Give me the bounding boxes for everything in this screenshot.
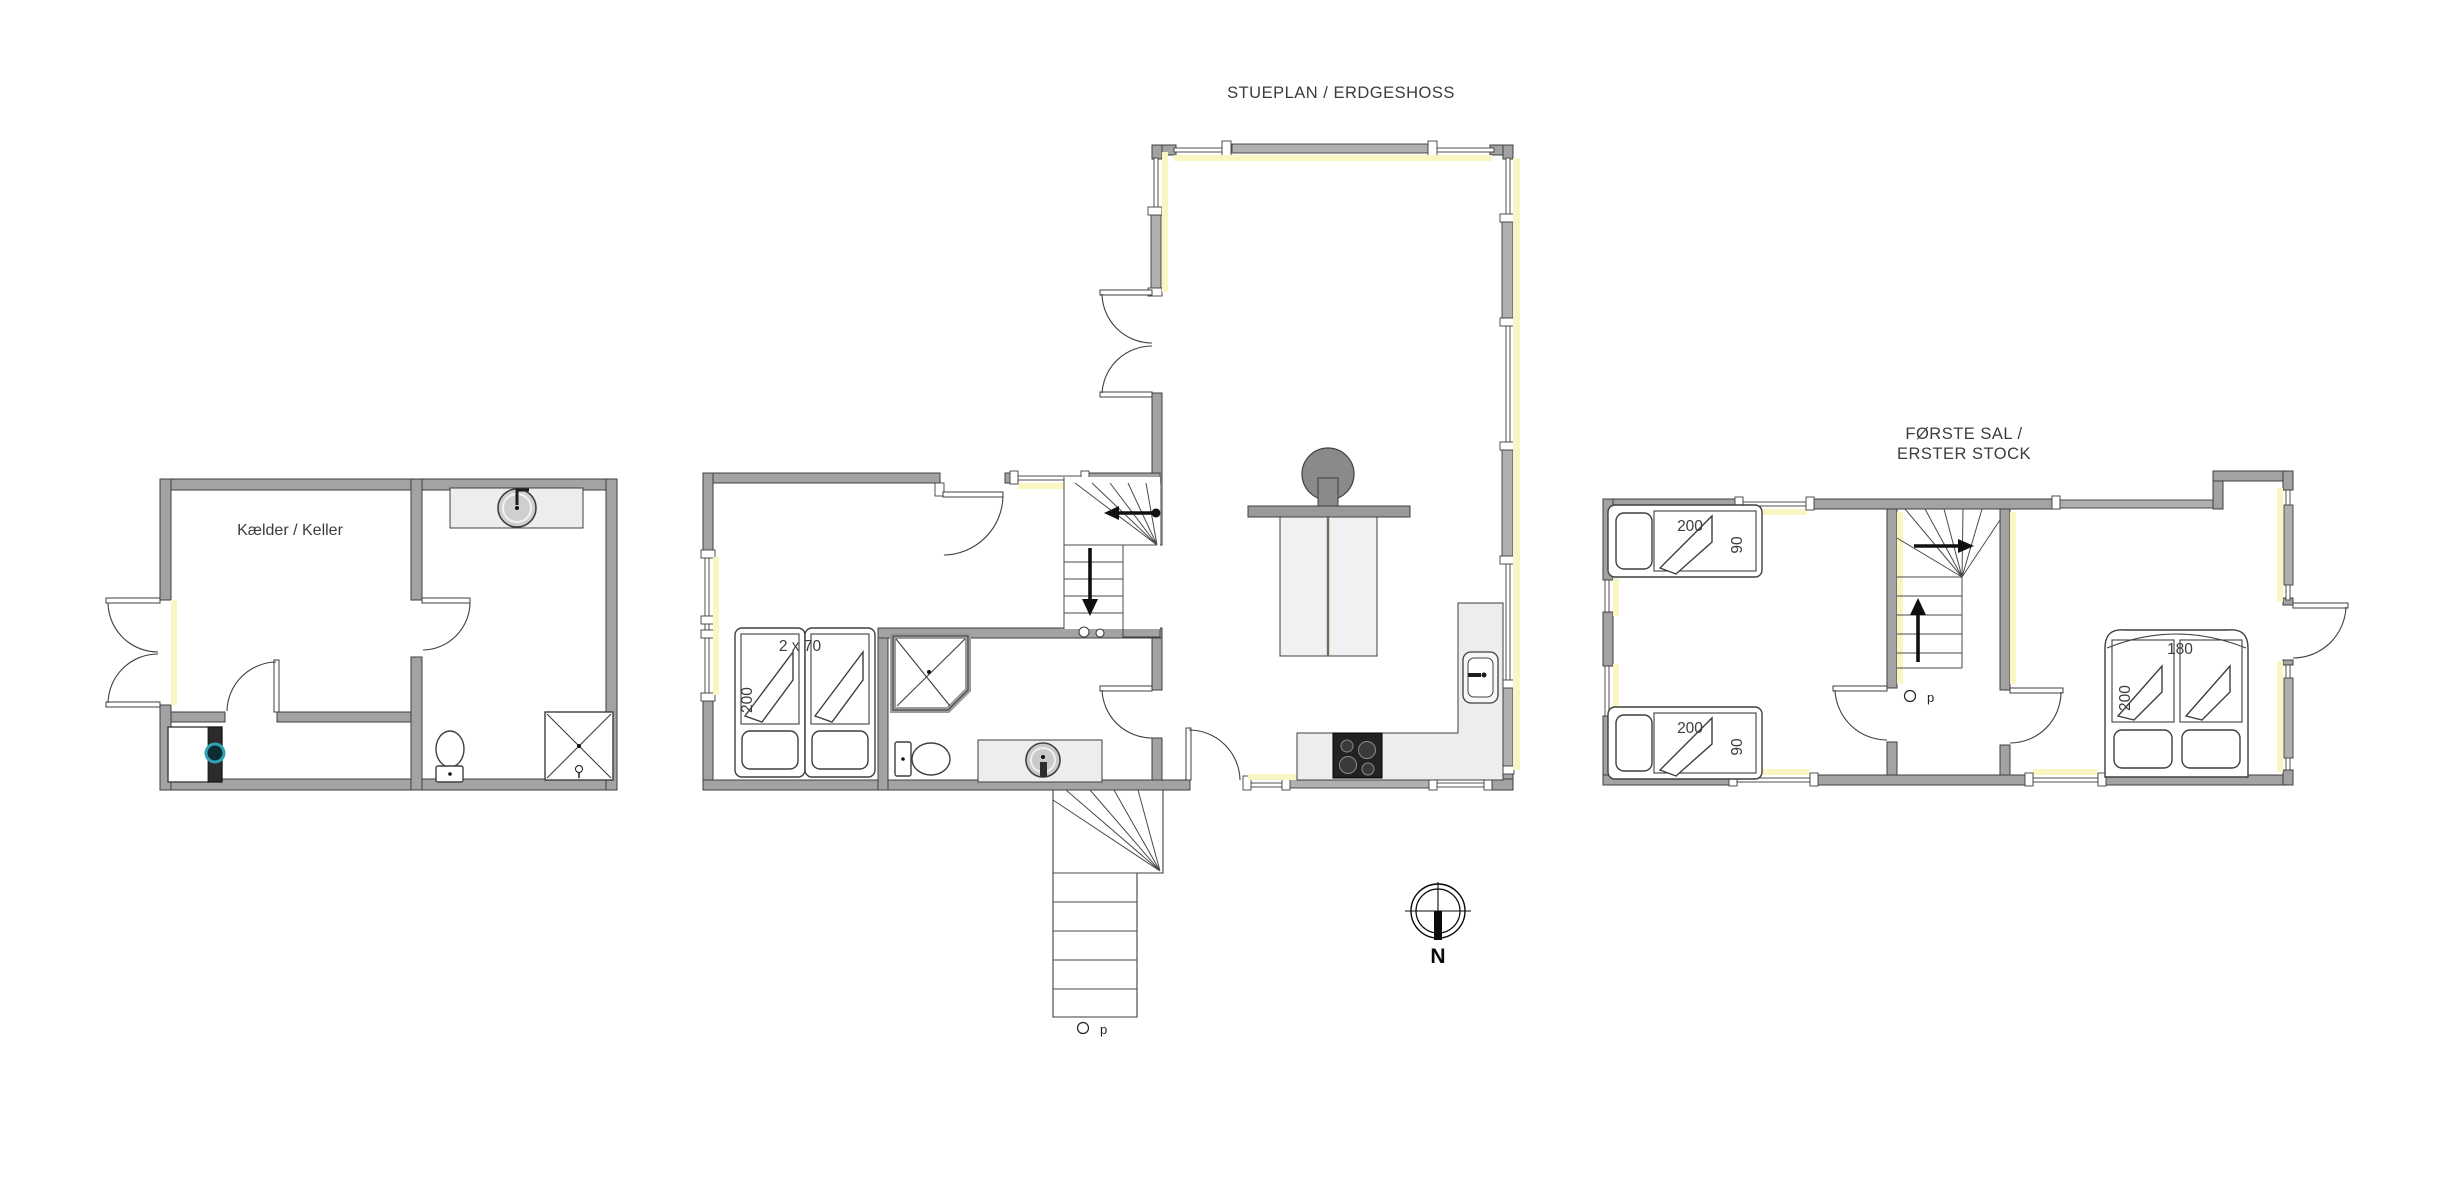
basement-window-glow [171,600,177,705]
first-floor-double-bed: 180 200 [2105,630,2248,777]
stair-arrow-up-icon [1910,598,1926,662]
bed-width-label: 90 [1729,738,1746,756]
hall-entry-door [935,483,1003,555]
floorplan-canvas: STUEPLAN / ERDGESHOSS FØRSTE SAL / ERSTE… [0,0,2460,1197]
living-room-french-doors [1100,290,1152,397]
exterior-stairs: p [1053,790,1163,1037]
bed-length-label: 200 [739,687,756,713]
first-floor-bed-bottom: 200 90 [1608,707,1762,779]
basement-shower-icon [545,712,613,780]
washing-machine-icon [168,727,224,782]
ground-bedroom-beds: 2 x 70 200 [735,628,875,777]
first-floor-right-room-door [2010,688,2063,743]
bed-width-label: 2 x 70 [779,638,822,655]
basement-bathroom-door [422,598,470,650]
compass-north-label: N [1430,945,1445,968]
basement-sink-icon [450,488,583,528]
ground-sink-icon [978,740,1102,782]
stairs-to-basement [1064,477,1161,637]
bed-width-label: 180 [2167,641,2193,658]
first-floor-plan: p 200 90 200 90 [1603,471,2348,786]
first-floor-title-line1: FØRSTE SAL / [1905,425,2022,443]
stair-arrow-right-icon [1914,539,1974,553]
main-entrance-door [1186,728,1240,780]
ground-floor-plan: 2 x 70 200 [701,141,1520,1037]
compass-icon: N [1405,882,1471,968]
ground-toilet-icon [895,742,950,776]
first-floor-title-line2: ERSTER STOCK [1897,445,2031,463]
stair-symbol-p: p [1100,1022,1107,1037]
floorplan-page: STUEPLAN / ERDGESHOSS FØRSTE SAL / ERSTE… [0,0,2460,1197]
cooktop-icon [1333,733,1382,778]
stair-symbol-circle-icon [1905,691,1916,702]
bed-length-label: 200 [2117,685,2134,711]
stairs-to-ground: p [1897,509,2000,705]
first-floor-balcony-door [2293,603,2348,658]
stair-symbol-circle-icon [1078,1023,1089,1034]
basement-plan: Kælder / Keller [106,479,617,790]
first-floor-left-room-door [1833,686,1887,740]
bed-width-label: 90 [1729,536,1746,554]
bed-length-label: 200 [1677,720,1703,737]
stair-symbol-p: p [1927,690,1934,705]
bed-length-label: 200 [1677,518,1703,535]
basement-toilet-icon [436,731,464,782]
basement-room-label: Kælder / Keller [237,522,343,539]
basement-room-door [227,660,279,712]
basement-exterior-double-door [106,598,160,707]
wood-stove-and-table [1248,448,1410,656]
kitchen-sink-icon [1463,652,1498,703]
ground-bathroom-door [1100,686,1152,738]
ground-floor-title: STUEPLAN / ERDGESHOSS [1227,84,1455,102]
first-floor-bed-top: 200 90 [1608,505,1762,577]
ground-shower-icon [893,636,968,710]
